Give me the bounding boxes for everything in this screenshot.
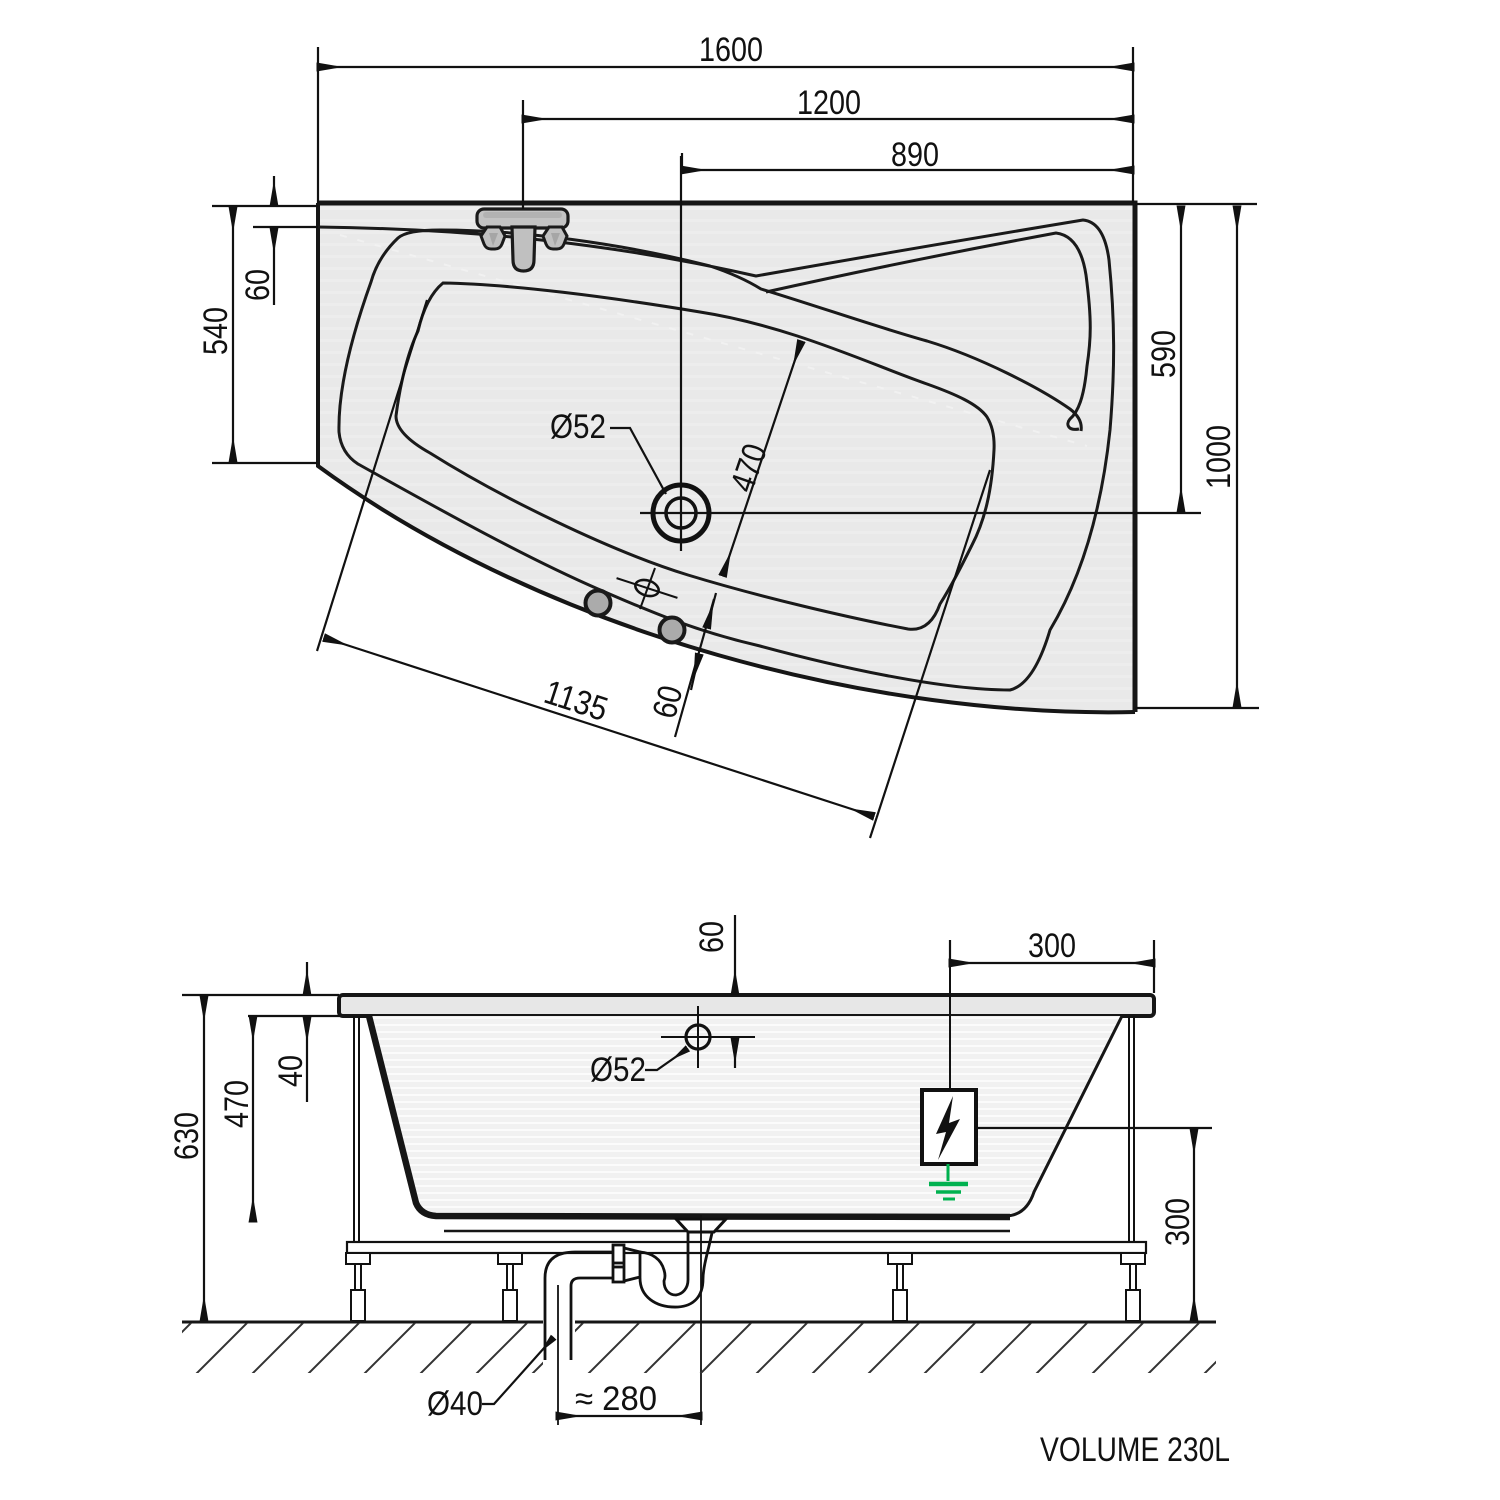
svg-text:1600: 1600 xyxy=(699,31,763,69)
svg-text:300: 300 xyxy=(1159,1198,1197,1246)
svg-text:VOLUME 230L: VOLUME 230L xyxy=(1040,1431,1230,1469)
svg-text:630: 630 xyxy=(168,1112,206,1160)
svg-text:1135: 1135 xyxy=(540,673,613,729)
svg-text:40: 40 xyxy=(272,1055,310,1087)
svg-text:300: 300 xyxy=(1028,927,1076,965)
svg-text:1200: 1200 xyxy=(797,84,861,122)
svg-text:590: 590 xyxy=(1145,330,1183,378)
svg-text:Ø52: Ø52 xyxy=(550,408,606,446)
svg-text:60: 60 xyxy=(693,921,731,953)
svg-text:≈ 280: ≈ 280 xyxy=(575,1380,657,1418)
svg-text:540: 540 xyxy=(197,307,235,355)
svg-text:60: 60 xyxy=(646,682,691,723)
svg-text:Ø52: Ø52 xyxy=(590,1051,646,1089)
svg-text:890: 890 xyxy=(891,136,939,174)
svg-text:470: 470 xyxy=(218,1080,256,1128)
svg-text:1000: 1000 xyxy=(1200,425,1238,489)
svg-text:Ø40: Ø40 xyxy=(427,1385,483,1423)
svg-text:60: 60 xyxy=(239,269,277,301)
